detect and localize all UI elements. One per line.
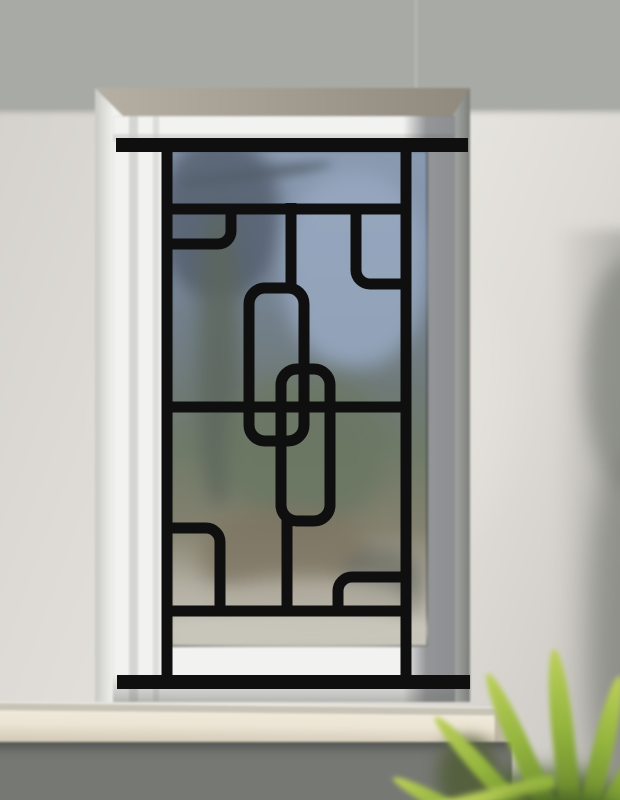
security-grille [0, 0, 620, 800]
top-right-corner-loop [356, 209, 406, 284]
render-scene [0, 0, 620, 800]
bottom-left-corner-loop [167, 528, 220, 611]
